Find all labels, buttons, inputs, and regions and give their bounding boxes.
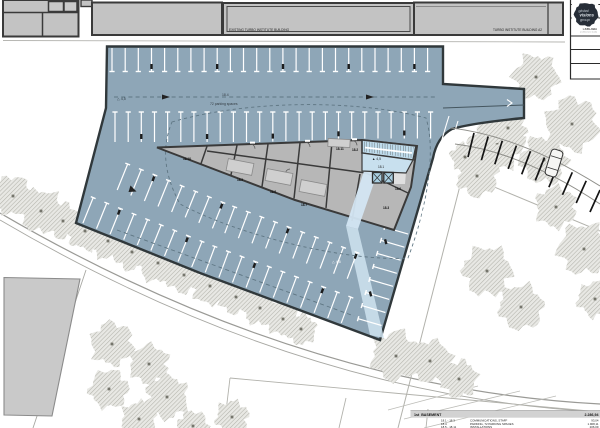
svg-text:18.1: 18.1 bbox=[378, 165, 384, 169]
svg-text:18.9: 18.9 bbox=[237, 178, 243, 182]
svg-text:EXISTING TURBO INSTITUTE BUILD: EXISTING TURBO INSTITUTE BUILDING bbox=[229, 28, 290, 32]
svg-text:18.10: 18.10 bbox=[183, 157, 191, 161]
svg-text:18.3: 18.3 bbox=[383, 206, 389, 210]
svg-text:TURBO INSTITUTE BUILDING A2: TURBO INSTITUTE BUILDING A2 bbox=[493, 28, 542, 32]
svg-text:18.7: 18.7 bbox=[301, 203, 307, 207]
svg-text:△ 4,5: △ 4,5 bbox=[332, 260, 341, 264]
svg-text:LJUBLJANA: LJUBLJANA bbox=[583, 28, 597, 31]
svg-text:▲ 4,5: ▲ 4,5 bbox=[372, 157, 381, 161]
svg-text:72 parking spaces: 72 parking spaces bbox=[210, 102, 238, 106]
svg-text:18.8: 18.8 bbox=[270, 190, 276, 194]
svg-text:visions: visions bbox=[580, 13, 595, 18]
svg-text:1st BASEMENT: 1st BASEMENT bbox=[414, 413, 442, 417]
svg-text:architecture studio: architecture studio bbox=[580, 31, 598, 34]
svg-text:18.11: 18.11 bbox=[336, 147, 344, 151]
svg-text:18.4: 18.4 bbox=[222, 93, 229, 97]
svg-text:2.286,94: 2.286,94 bbox=[585, 413, 599, 417]
svg-text:18.0: 18.0 bbox=[395, 187, 401, 191]
svg-text:18.2: 18.2 bbox=[352, 148, 358, 152]
svg-text:group: group bbox=[580, 18, 590, 22]
svg-text:△ 4,5: △ 4,5 bbox=[117, 97, 126, 101]
